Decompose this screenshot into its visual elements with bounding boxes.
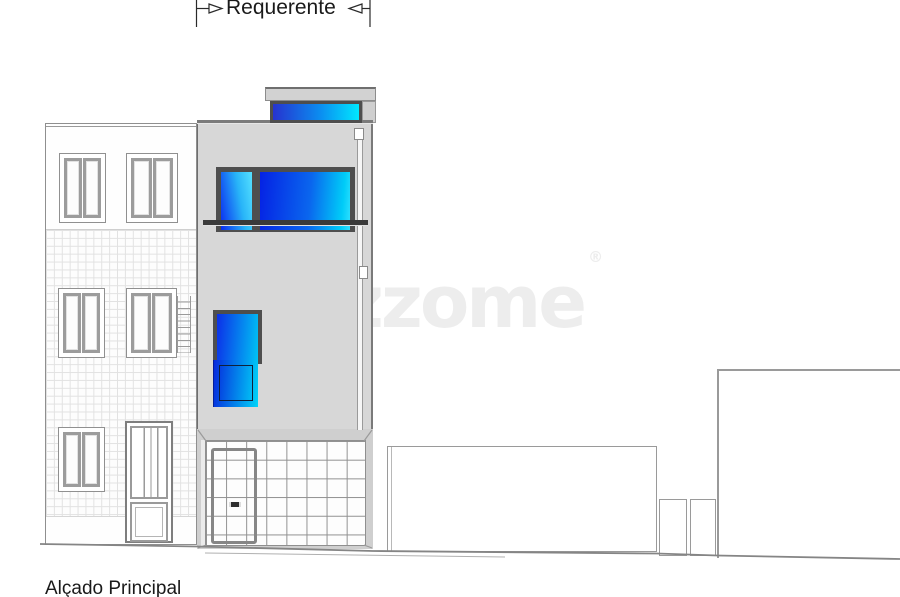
garage-pedestrian-door	[211, 448, 257, 544]
window-ground-floor	[58, 427, 105, 492]
window-mid-floor-1	[58, 288, 105, 358]
dimension-arrow-right-icon	[209, 4, 222, 13]
mid-floor-window	[213, 310, 262, 364]
watermark-registered-icon: ®	[588, 248, 603, 266]
boundary-wall	[387, 446, 657, 552]
roof-edge-line	[46, 126, 196, 127]
pipe-junction-box-mid	[359, 266, 368, 279]
window-top-floor-2	[126, 153, 178, 223]
drawing-title: Alçado Principal	[45, 578, 181, 597]
sash-outline	[219, 365, 253, 401]
door-handle	[229, 502, 241, 507]
neighbor-building-right	[717, 369, 900, 558]
gate-post-1	[659, 499, 687, 556]
watermark-text: zzome	[342, 260, 584, 344]
dimension-marker-right	[349, 0, 370, 27]
dimension-marker-left	[197, 0, 223, 27]
window-top-floor-1	[59, 153, 106, 223]
neighbor-building-left	[45, 123, 197, 545]
elevation-drawing-sheet: zzome® Requerente	[0, 0, 900, 597]
main-building	[197, 120, 373, 549]
door-panel-bottom	[130, 502, 168, 542]
penthouse-roof-slab	[265, 87, 376, 101]
drain-pipe	[357, 138, 363, 430]
dimension-arrow-left-icon	[349, 4, 362, 13]
entry-door-neighbor	[125, 421, 173, 543]
pipe-junction-box-top	[354, 128, 364, 140]
window-mid-floor-2	[126, 288, 177, 358]
garage-recess	[197, 429, 373, 549]
watermark: zzome®	[342, 266, 599, 338]
balcony-railing	[203, 220, 368, 226]
requerente-annotation-label: Requerente	[226, 0, 336, 20]
penthouse-strip-window	[270, 101, 362, 123]
mid-floor-window-open-sash	[213, 360, 258, 407]
louver-vent-detail	[177, 296, 191, 353]
gate-post-2	[690, 499, 716, 556]
door-glazed-top	[130, 426, 168, 499]
wall-edge-line	[391, 447, 392, 551]
